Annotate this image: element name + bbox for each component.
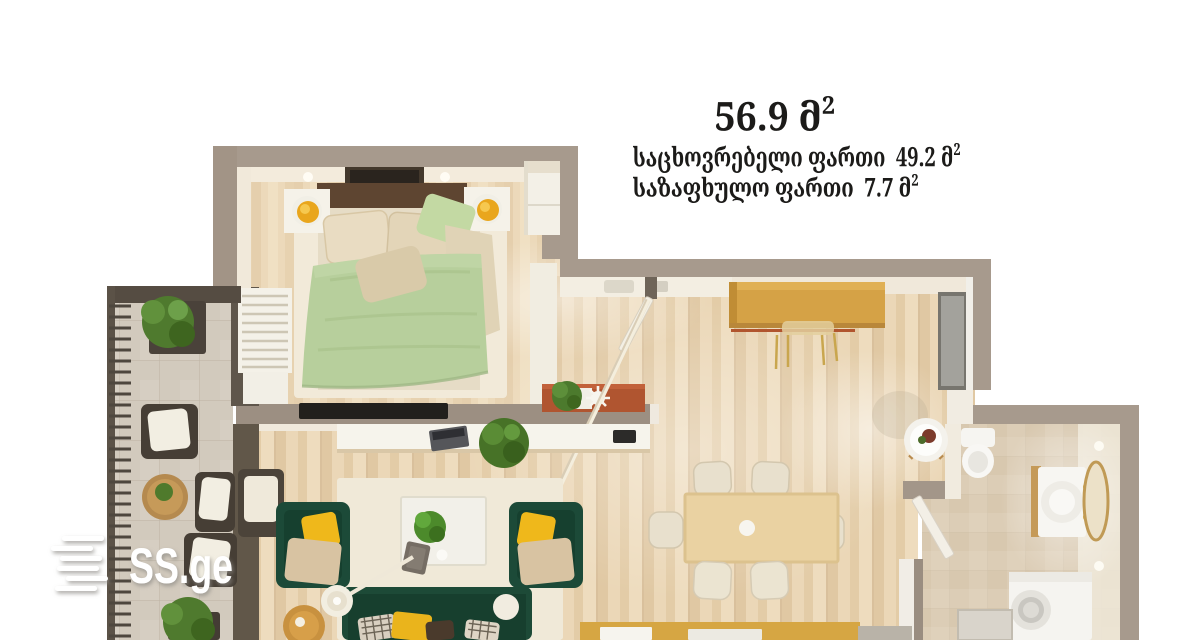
svg-text:SS.ge: SS.ge [129, 538, 233, 594]
